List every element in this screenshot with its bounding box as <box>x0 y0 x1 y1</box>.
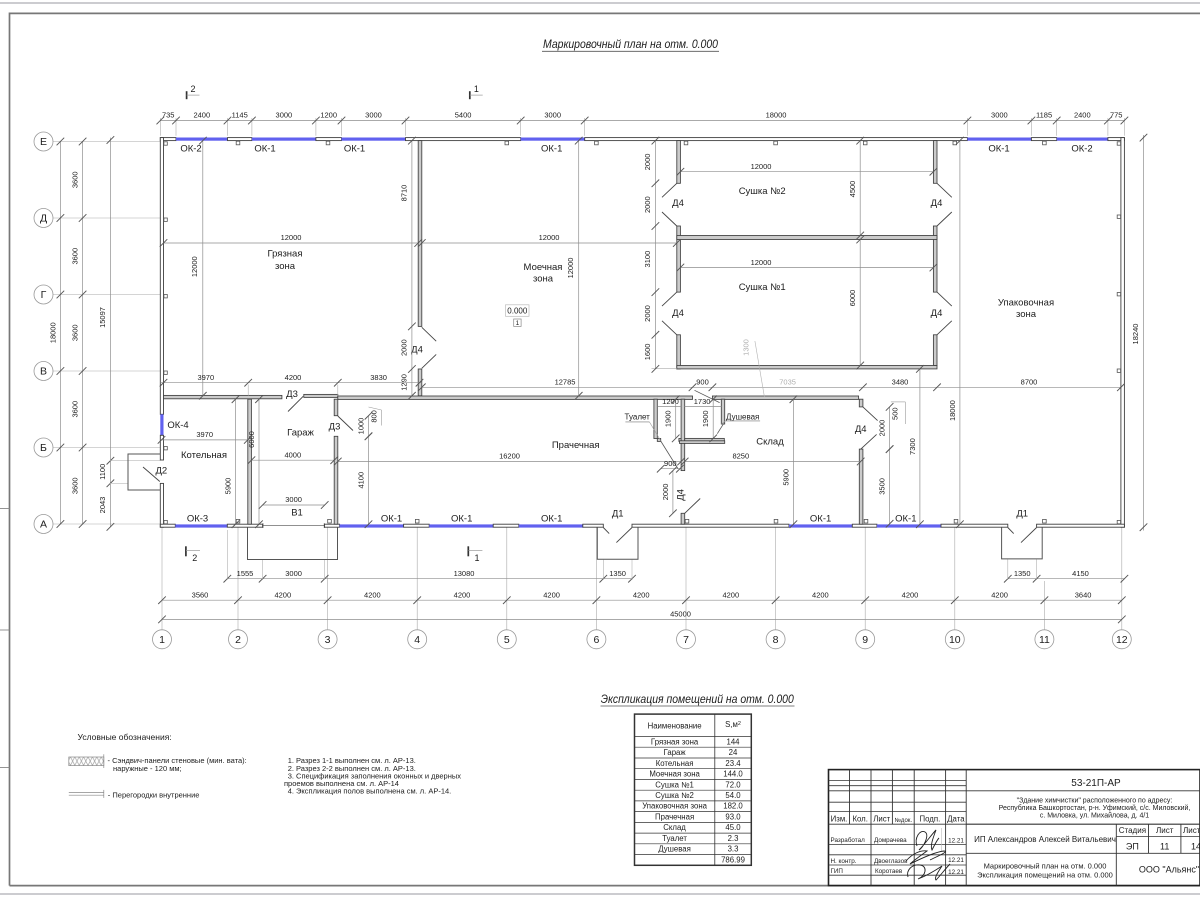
svg-text:Дата: Дата <box>947 815 965 824</box>
svg-text:9: 9 <box>862 634 868 646</box>
svg-text:10: 10 <box>949 634 961 646</box>
svg-text:Изм.: Изм. <box>831 815 848 824</box>
svg-text:16200: 16200 <box>499 452 520 461</box>
svg-text:7035: 7035 <box>779 378 796 387</box>
svg-text:Котельная: Котельная <box>656 759 694 768</box>
svg-text:5900: 5900 <box>223 478 232 495</box>
svg-text:1185: 1185 <box>1036 111 1052 120</box>
svg-text:2400: 2400 <box>193 111 210 120</box>
svg-text:3600: 3600 <box>71 248 80 265</box>
svg-text:12000: 12000 <box>751 162 772 171</box>
svg-text:1145: 1145 <box>232 111 248 120</box>
svg-text:Разработал: Разработал <box>831 836 866 844</box>
svg-text:1600: 1600 <box>643 344 652 361</box>
svg-text:Д1: Д1 <box>612 509 624 520</box>
svg-text:2000: 2000 <box>643 196 652 213</box>
svg-text:1: 1 <box>474 553 479 563</box>
svg-text:2: 2 <box>235 634 241 646</box>
svg-text:ОК-1: ОК-1 <box>381 514 402 525</box>
svg-text:Душевая: Душевая <box>658 845 691 854</box>
svg-text:900: 900 <box>696 378 709 387</box>
svg-text:4500: 4500 <box>848 181 857 198</box>
svg-text:12.21: 12.21 <box>948 838 964 845</box>
svg-text:12785: 12785 <box>555 378 576 387</box>
svg-text:Склад: Склад <box>756 437 784 448</box>
svg-text:Прачечная: Прачечная <box>552 440 600 451</box>
svg-text:зона: зона <box>533 274 554 285</box>
svg-text:- Перегородки внутренние: - Перегородки внутренние <box>108 791 200 800</box>
svg-text:53-21П-АР: 53-21П-АР <box>1071 778 1121 789</box>
svg-text:Душевая: Душевая <box>726 413 759 422</box>
svg-text:3600: 3600 <box>71 171 80 188</box>
svg-text:900: 900 <box>664 459 677 468</box>
svg-text:18000: 18000 <box>766 111 787 120</box>
svg-text:Сушка №1: Сушка №1 <box>655 780 694 789</box>
svg-text:Туалет: Туалет <box>662 834 687 843</box>
svg-text:3000: 3000 <box>285 495 302 504</box>
svg-text:В1: В1 <box>291 507 303 518</box>
svg-text:Д4: Д4 <box>676 489 687 501</box>
svg-text:2: 2 <box>192 553 197 563</box>
svg-text:Котельная: Котельная <box>181 450 227 461</box>
svg-text:Грязная: Грязная <box>268 249 303 260</box>
svg-text:800: 800 <box>370 410 379 423</box>
svg-text:3100: 3100 <box>643 251 652 268</box>
svg-text:4200: 4200 <box>902 590 919 599</box>
svg-text:12000: 12000 <box>751 258 772 267</box>
svg-text:8250: 8250 <box>732 452 749 461</box>
svg-text:Республика Башкортостан, р-н.: Республика Башкортостан, р-н. Уфимский, … <box>999 804 1191 812</box>
svg-text:Сушка №1: Сушка №1 <box>739 282 786 293</box>
svg-text:500: 500 <box>891 407 900 420</box>
svg-text:3.3: 3.3 <box>728 845 739 854</box>
svg-text:Грязная зона: Грязная зона <box>651 737 699 746</box>
svg-text:23.4: 23.4 <box>725 759 741 768</box>
svg-text:18240: 18240 <box>1131 324 1140 345</box>
svg-text:12000: 12000 <box>281 233 302 242</box>
svg-text:ОК-3: ОК-3 <box>187 514 208 525</box>
svg-text:ОК-1: ОК-1 <box>541 514 562 525</box>
svg-text:3: 3 <box>325 634 331 646</box>
svg-text:3000: 3000 <box>285 569 302 578</box>
svg-text:зона: зона <box>275 261 296 272</box>
svg-text:ОК-1: ОК-1 <box>451 514 472 525</box>
svg-text:12.21: 12.21 <box>948 869 964 876</box>
svg-text:4100: 4100 <box>356 472 365 489</box>
svg-text:зона: зона <box>1016 309 1037 320</box>
svg-text:Маркировочный план на отм. 0.0: Маркировочный план на отм. 0.000 <box>984 862 1107 871</box>
svg-text:4200: 4200 <box>454 590 471 599</box>
svg-text:6000: 6000 <box>848 290 857 307</box>
svg-text:Упаковочная зона: Упаковочная зона <box>642 802 707 811</box>
svg-text:Моечная зона: Моечная зона <box>649 770 700 779</box>
svg-text:1200: 1200 <box>320 111 337 120</box>
svg-text:12: 12 <box>1116 634 1128 646</box>
svg-text:Д4: Д4 <box>672 308 684 319</box>
svg-text:Г: Г <box>41 289 47 301</box>
svg-text:"Здание химчистки" расположенн: "Здание химчистки" расположенного по адр… <box>1017 798 1173 805</box>
svg-text:Домрачева: Домрачева <box>874 837 907 844</box>
svg-text:0.000: 0.000 <box>507 306 528 315</box>
svg-text:7300: 7300 <box>908 438 917 455</box>
svg-text:4000: 4000 <box>284 450 301 459</box>
svg-text:15097: 15097 <box>98 307 107 328</box>
svg-text:3600: 3600 <box>71 401 80 418</box>
svg-text:ИП Александров Алексей Виталье: ИП Александров Алексей Витальевич <box>974 835 1116 844</box>
svg-text:Д4: Д4 <box>672 198 684 209</box>
svg-text:ОК-2: ОК-2 <box>1071 144 1092 155</box>
svg-text:2000: 2000 <box>878 420 887 437</box>
svg-text:Д4: Д4 <box>855 424 867 435</box>
svg-text:3000: 3000 <box>276 111 293 120</box>
svg-text:Сушка №2: Сушка №2 <box>655 791 694 800</box>
svg-text:Лист: Лист <box>1156 826 1174 835</box>
svg-text:Д4: Д4 <box>931 198 943 209</box>
svg-text:ГИП: ГИП <box>831 868 844 875</box>
svg-text:ОК-1: ОК-1 <box>254 144 275 155</box>
svg-text:ОК-1: ОК-1 <box>988 144 1009 155</box>
svg-text:5: 5 <box>504 634 510 646</box>
svg-text:Б: Б <box>40 442 47 454</box>
svg-text:2000: 2000 <box>399 339 408 356</box>
svg-text:Условные обозначения:: Условные обозначения: <box>78 732 172 742</box>
svg-text:3500: 3500 <box>878 478 887 495</box>
svg-text:Гараж: Гараж <box>287 427 314 438</box>
svg-text:1: 1 <box>159 634 165 646</box>
svg-text:1900: 1900 <box>664 410 673 427</box>
svg-text:2000: 2000 <box>661 484 670 501</box>
svg-text:Стадия: Стадия <box>1119 826 1146 835</box>
svg-text:Д2: Д2 <box>155 465 167 476</box>
svg-text:12000: 12000 <box>566 258 575 279</box>
svg-text:Сушка №2: Сушка №2 <box>739 186 786 197</box>
svg-text:Д1: Д1 <box>1016 509 1028 520</box>
svg-text:144: 144 <box>726 737 740 746</box>
svg-text:2.3: 2.3 <box>728 834 739 843</box>
svg-text:144.0: 144.0 <box>723 770 743 779</box>
svg-text:4200: 4200 <box>812 590 829 599</box>
svg-text:4200: 4200 <box>274 590 291 599</box>
svg-text:2: 2 <box>190 84 195 94</box>
svg-text:2000: 2000 <box>643 305 652 322</box>
svg-text:ОК-4: ОК-4 <box>167 420 188 431</box>
svg-text:3000: 3000 <box>544 111 561 120</box>
svg-text:2400: 2400 <box>1074 111 1091 120</box>
svg-text:Маркировочный план на отм. 0.0: Маркировочный план на отм. 0.000 <box>543 37 718 51</box>
svg-text:4. Экспликация полов выполнена: 4. Экспликация полов выполнена см. л. АР… <box>288 787 452 796</box>
svg-text:4200: 4200 <box>722 590 739 599</box>
svg-text:3480: 3480 <box>892 378 909 387</box>
svg-text:1000: 1000 <box>356 418 365 435</box>
svg-text:Гараж: Гараж <box>664 748 687 757</box>
svg-text:3560: 3560 <box>192 590 209 599</box>
svg-text:Д3: Д3 <box>286 389 298 400</box>
svg-text:№док.: №док. <box>895 817 913 824</box>
svg-text:Кол.: Кол. <box>852 815 867 824</box>
svg-text:1350: 1350 <box>1014 569 1031 578</box>
svg-text:12000: 12000 <box>539 233 560 242</box>
svg-text:11: 11 <box>1039 634 1050 646</box>
svg-text:1: 1 <box>474 84 479 94</box>
svg-text:3600: 3600 <box>71 324 80 341</box>
svg-text:ОК-1: ОК-1 <box>810 514 831 525</box>
svg-text:1555: 1555 <box>237 569 254 578</box>
svg-text:18000: 18000 <box>48 322 57 343</box>
svg-text:93.0: 93.0 <box>725 813 741 822</box>
svg-text:3000: 3000 <box>365 111 382 120</box>
svg-text:1350: 1350 <box>609 569 626 578</box>
svg-text:Моечная: Моечная <box>524 262 563 273</box>
svg-text:Двоеглазов: Двоеглазов <box>874 858 908 865</box>
svg-text:4150: 4150 <box>1072 569 1089 578</box>
svg-text:Д: Д <box>40 213 47 225</box>
svg-text:Наименование: Наименование <box>648 722 702 731</box>
svg-text:2000: 2000 <box>643 154 652 171</box>
svg-text:1: 1 <box>516 320 520 327</box>
svg-text:Е: Е <box>40 136 47 148</box>
svg-text:4200: 4200 <box>543 590 560 599</box>
svg-text:3000: 3000 <box>991 111 1008 120</box>
svg-text:12.21: 12.21 <box>948 857 964 864</box>
svg-text:7: 7 <box>683 634 689 646</box>
svg-text:18000: 18000 <box>948 400 957 421</box>
svg-text:8: 8 <box>773 634 779 646</box>
svg-text:ООО "Альянс": ООО "Альянс" <box>1139 865 1199 875</box>
svg-text:3640: 3640 <box>1075 590 1092 599</box>
svg-text:13080: 13080 <box>454 569 475 578</box>
svg-text:Туалет: Туалет <box>625 413 651 422</box>
svg-text:Склад: Склад <box>663 823 686 832</box>
svg-text:Экспликация помещений на отм.: Экспликация помещений на отм. 0.000 <box>601 692 794 706</box>
svg-text:1730: 1730 <box>694 397 711 406</box>
svg-text:ОК-1: ОК-1 <box>344 144 365 155</box>
svg-text:с. Миловка, ул. Михайлова, д.: с. Миловка, ул. Михайлова, д. 4/1 <box>1040 812 1149 820</box>
svg-text:Д4: Д4 <box>411 344 423 355</box>
svg-text:4: 4 <box>414 634 420 646</box>
svg-text:ОК-1: ОК-1 <box>541 144 562 155</box>
svg-text:11: 11 <box>1160 842 1169 852</box>
svg-text:8710: 8710 <box>399 185 408 202</box>
svg-text:5900: 5900 <box>781 469 790 486</box>
svg-text:182.0: 182.0 <box>723 802 743 811</box>
svg-text:ОК-1: ОК-1 <box>895 514 916 525</box>
svg-text:ЭП: ЭП <box>1126 842 1139 852</box>
svg-text:54.0: 54.0 <box>725 791 741 800</box>
svg-text:1100: 1100 <box>98 464 107 480</box>
svg-text:Н. контр.: Н. контр. <box>831 858 857 865</box>
svg-text:4200: 4200 <box>991 590 1008 599</box>
svg-text:4200: 4200 <box>633 590 650 599</box>
svg-text:Лист: Лист <box>873 815 890 824</box>
svg-text:Листов: Листов <box>1183 826 1200 835</box>
svg-text:3600: 3600 <box>71 477 80 494</box>
svg-text:наружные - 120 мм;: наружные - 120 мм; <box>113 764 182 773</box>
svg-text:735: 735 <box>162 111 175 120</box>
svg-text:ОК-2: ОК-2 <box>180 144 201 155</box>
svg-text:Коротаев: Коротаев <box>875 868 903 875</box>
svg-text:72.0: 72.0 <box>725 780 741 789</box>
svg-text:3970: 3970 <box>197 373 214 382</box>
svg-text:5400: 5400 <box>455 111 472 120</box>
svg-text:1300: 1300 <box>741 339 750 356</box>
svg-text:3830: 3830 <box>370 373 387 382</box>
svg-text:Экспликация помещений на отм.: Экспликация помещений на отм. 0.000 <box>977 871 1113 880</box>
svg-text:Упаковочная: Упаковочная <box>998 297 1054 308</box>
svg-text:3970: 3970 <box>196 430 213 439</box>
svg-text:775: 775 <box>1110 111 1123 120</box>
svg-text:45000: 45000 <box>670 609 691 618</box>
svg-text:12000: 12000 <box>190 256 199 277</box>
svg-text:Прачечная: Прачечная <box>655 813 694 822</box>
svg-text:14: 14 <box>1191 842 1200 852</box>
svg-text:Д3: Д3 <box>329 421 341 432</box>
svg-text:В: В <box>40 366 47 378</box>
svg-text:786.99: 786.99 <box>721 855 745 864</box>
svg-text:1900: 1900 <box>701 410 710 427</box>
svg-text:8700: 8700 <box>1021 378 1038 387</box>
svg-text:24: 24 <box>729 748 738 757</box>
svg-text:6: 6 <box>593 634 599 646</box>
svg-text:4200: 4200 <box>364 590 381 599</box>
svg-text:45.0: 45.0 <box>725 823 741 832</box>
svg-text:Подп.: Подп. <box>920 815 941 824</box>
svg-text:2043: 2043 <box>98 497 107 514</box>
svg-text:Д4: Д4 <box>931 308 943 319</box>
svg-text:А: А <box>40 519 47 531</box>
svg-text:4200: 4200 <box>285 373 302 382</box>
